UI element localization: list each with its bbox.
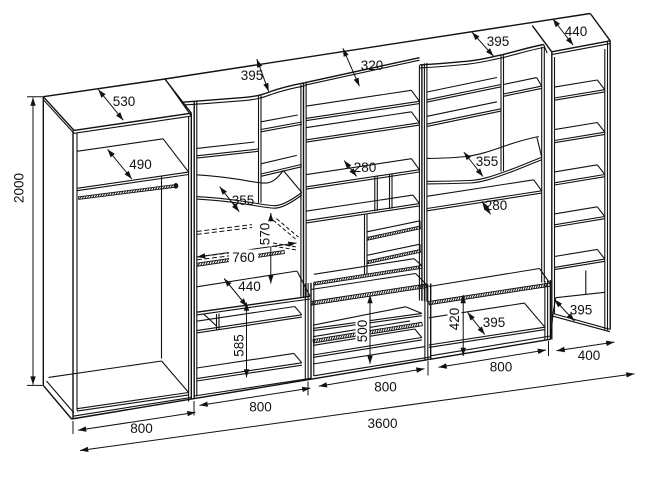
svg-text:320: 320 [361, 58, 384, 73]
svg-text:800: 800 [249, 400, 272, 415]
svg-text:395: 395 [487, 34, 510, 49]
svg-text:395: 395 [483, 315, 506, 330]
svg-text:800: 800 [490, 360, 513, 375]
svg-text:585: 585 [232, 334, 247, 357]
svg-text:490: 490 [129, 157, 152, 172]
svg-text:800: 800 [130, 421, 153, 436]
svg-text:500: 500 [355, 320, 370, 343]
svg-text:395: 395 [241, 68, 264, 83]
svg-text:760: 760 [232, 250, 255, 265]
svg-text:440: 440 [238, 279, 261, 294]
svg-text:800: 800 [374, 380, 397, 395]
svg-text:355: 355 [232, 193, 255, 208]
svg-text:530: 530 [113, 94, 136, 109]
svg-text:440: 440 [565, 24, 588, 39]
svg-text:280: 280 [354, 160, 377, 175]
svg-text:420: 420 [447, 308, 462, 331]
svg-text:2000: 2000 [12, 173, 27, 203]
svg-text:395: 395 [570, 303, 593, 318]
svg-text:400: 400 [578, 348, 601, 363]
svg-text:3600: 3600 [367, 416, 397, 431]
svg-text:280: 280 [485, 198, 508, 213]
svg-text:355: 355 [476, 154, 499, 169]
svg-text:570: 570 [258, 223, 273, 246]
